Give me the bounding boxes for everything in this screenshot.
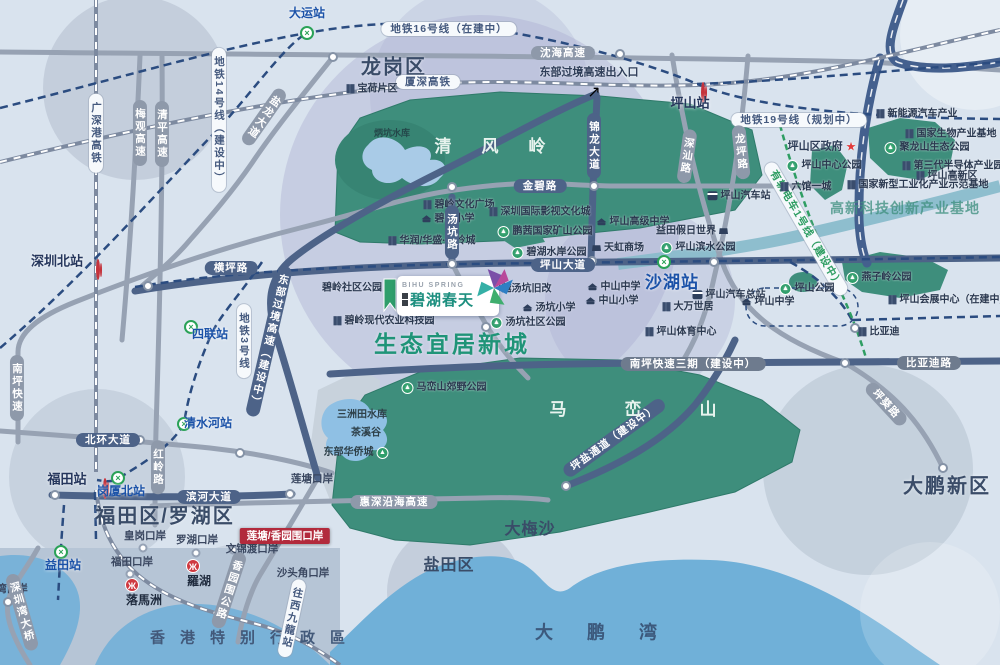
metro-line16-label: 地铁16号线（在建中） bbox=[381, 22, 516, 36]
dapeng-bay-text: 大鹏湾 bbox=[535, 623, 691, 644]
bld-icon bbox=[347, 85, 355, 94]
baohe-area-text: 宝荷片区 bbox=[358, 83, 398, 95]
bld-icon bbox=[848, 181, 856, 190]
pingshan-avenue: 坪山大道 bbox=[531, 258, 595, 272]
jinlong-avenue: 锦龙大道 bbox=[587, 113, 601, 179]
tangkeng-community-park: ▲汤坑社区公园 bbox=[491, 317, 566, 329]
luohu-port-text: 罗湖口岸 bbox=[176, 534, 218, 546]
hongling-road-text: 红岭路 bbox=[152, 448, 164, 486]
hightech-innovation-base: 高新科技创新产业基地 bbox=[830, 200, 980, 216]
bld-icon bbox=[663, 303, 671, 312]
pingshan-avenue-text: 坪山大道 bbox=[540, 259, 586, 271]
xiashen-hsr-text: 厦深高铁 bbox=[405, 76, 451, 88]
new-energy-auto-industry: 新能源汽车产业 bbox=[877, 108, 958, 120]
sz-intl-film-culture-city-text: 深圳国际影视文化城 bbox=[501, 206, 591, 218]
port-node bbox=[192, 549, 201, 558]
jinlong-avenue-text: 锦龙大道 bbox=[588, 121, 600, 171]
huanggang-port-text: 皇岗口岸 bbox=[124, 530, 166, 542]
sch-icon bbox=[588, 283, 598, 291]
bingkeng-reservoir-text: 炳坑水库 bbox=[374, 128, 410, 138]
bld-icon bbox=[889, 296, 897, 305]
dongbu-oct-text: 东部华侨城 bbox=[324, 447, 374, 459]
tianhong-mall: 天虹商场 bbox=[592, 242, 644, 254]
huishen-coastal-expressway: 惠深沿海高速 bbox=[351, 495, 438, 509]
metro-line14-label-text: 地铁14号线（建设中） bbox=[213, 56, 225, 184]
pengxi-national-mine-park: ▲鹏茜国家矿山公园 bbox=[498, 226, 593, 238]
zhongshan-primary-school-text: 中山小学 bbox=[599, 295, 639, 307]
yanziling-park-text: 燕子岭公园 bbox=[862, 272, 912, 284]
park-icon: ▲ bbox=[491, 317, 503, 329]
byd: 比亚迪 bbox=[859, 326, 900, 338]
pingshan-sports-center: 坪山体育中心 bbox=[646, 326, 717, 338]
huanggang-port: 皇岗口岸 bbox=[124, 530, 166, 542]
lok-ma-chau-text: 落馬洲 bbox=[126, 594, 162, 608]
map-root: 大运站地铁16号线（在建中）龙岗区沈海高速厦深高铁东部过境高速出入口宝荷片区坪山… bbox=[0, 0, 1000, 665]
road-node bbox=[143, 281, 153, 291]
station-pingshan: 坪山站 bbox=[670, 97, 709, 112]
tangkeng-road: 汤坑路 bbox=[445, 205, 459, 259]
chaxigu-text: 茶溪谷 bbox=[351, 427, 381, 439]
metro-line19-label: 地铁19号线（规划中） bbox=[731, 113, 866, 127]
liuguan-yicheng-text: 六馆一城 bbox=[792, 181, 832, 193]
liantang-xiangyuanwei-port-text: 莲塘/香园围口岸 bbox=[247, 530, 323, 542]
star-icon: ★ bbox=[846, 141, 857, 153]
station-qingshuihe: 清水河站 bbox=[184, 417, 232, 431]
pengxi-national-mine-park-text: 鹏茜国家矿山公园 bbox=[513, 226, 593, 238]
station-shenzhenbei: 深圳北站 bbox=[31, 255, 83, 270]
bus-icon bbox=[693, 291, 703, 300]
bld-icon bbox=[781, 183, 789, 192]
liantang-xiangyuanwei-port: 莲塘/香园围口岸 bbox=[240, 528, 330, 544]
qingfengling-text: 清风岭 bbox=[435, 137, 576, 157]
park-icon: ▲ bbox=[787, 160, 799, 172]
sanzhoutian-reservoir-text: 三洲田水库 bbox=[337, 409, 387, 421]
huishen-coastal-expressway-text: 惠深沿海高速 bbox=[360, 496, 429, 508]
station-shahu-text: 沙湖站 bbox=[645, 273, 699, 293]
byd-road-text: 比亚迪路 bbox=[906, 357, 952, 369]
hongling-road: 红岭路 bbox=[151, 440, 165, 494]
highway-exit-icon: ↗ bbox=[587, 82, 600, 102]
metro-station-icon: × bbox=[111, 471, 125, 485]
station-shenzhenbei-text: 深圳北站 bbox=[31, 255, 83, 270]
liantang-port: 莲塘口岸 bbox=[291, 473, 333, 485]
bld-icon bbox=[903, 162, 911, 171]
sch-icon bbox=[742, 298, 752, 306]
park-icon: ▲ bbox=[847, 272, 859, 284]
biling-modern-agritech-park: 碧岭现代农业科技园 bbox=[334, 315, 435, 327]
road-node bbox=[561, 481, 571, 491]
qingfengling: 清风岭 bbox=[435, 137, 576, 157]
pingshan-bus-station-text: 坪山汽车站 bbox=[721, 190, 771, 202]
luohu-port: 罗湖口岸 bbox=[176, 534, 218, 546]
bld-icon bbox=[877, 110, 885, 119]
nanping-expressway: 南坪快速 bbox=[10, 355, 24, 421]
mtr-station-icon: Ж bbox=[186, 559, 200, 573]
station-dayun: 大运站 bbox=[289, 7, 325, 21]
yitian-holiday-world-text: 益田假日世界 bbox=[656, 225, 716, 237]
station-silian-text: 四联站 bbox=[192, 328, 228, 342]
dongbu-expressway-exit: 东部过境高速出入口 bbox=[540, 67, 639, 80]
shatoujiao-port-text: 沙头角口岸 bbox=[277, 567, 330, 579]
logo-cn: 碧湖春天 bbox=[410, 289, 474, 310]
hk-sar-text: 香港特别行政區 bbox=[150, 629, 360, 646]
metro-line3-label-text: 地铁3号线 bbox=[238, 312, 250, 370]
eco-livable-new-city: 生态宜居新城 bbox=[374, 331, 530, 357]
pingshan-bus-station: 坪山汽车站 bbox=[708, 190, 771, 202]
logo-text: BIHU SPRING 碧湖春天 bbox=[402, 282, 474, 310]
pingshan-central-park-text: 坪山中心公园 bbox=[802, 160, 862, 172]
road-node bbox=[589, 181, 599, 191]
station-futian-text: 福田站 bbox=[47, 473, 86, 488]
pingshan-convention-center: 坪山会展中心（在建中） bbox=[889, 294, 1000, 306]
shenhai-expressway-text: 沈海高速 bbox=[540, 47, 586, 59]
beihuan-avenue: 北环大道 bbox=[76, 433, 140, 447]
biling-community-park-text: 碧岭社区公园 bbox=[322, 282, 382, 294]
yanziling-park: ▲燕子岭公园 bbox=[847, 272, 912, 284]
road-node bbox=[447, 259, 457, 269]
park-icon: ▲ bbox=[498, 226, 510, 238]
biling-modern-agritech-park-text: 碧岭现代农业科技园 bbox=[345, 315, 435, 327]
dongbu-expressway-exit-text: 东部过境高速出入口 bbox=[540, 67, 639, 80]
railway-station-icon bbox=[96, 259, 100, 280]
station-futian: 福田站 bbox=[47, 473, 86, 488]
road-node bbox=[938, 463, 948, 473]
bld-icon bbox=[388, 237, 396, 246]
station-shahu: 沙湖站 bbox=[645, 273, 699, 293]
tangkeng-primary-school-text: 汤坑小学 bbox=[536, 302, 576, 314]
pingshan-park-text: 坪山公园 bbox=[795, 283, 835, 295]
district-yantian-text: 盐田区 bbox=[423, 557, 474, 575]
tangkeng-road-text: 汤坑路 bbox=[446, 213, 458, 251]
zhongshan-middle-school-text: 中山中学 bbox=[601, 281, 641, 293]
cart-icon bbox=[719, 228, 728, 234]
julongshan-eco-park-text: 聚龙山生态公园 bbox=[900, 142, 970, 154]
pingshan-park: ▲坪山公园 bbox=[780, 283, 835, 295]
eco-livable-new-city-text: 生态宜居新城 bbox=[374, 331, 530, 357]
metro-line16-label-text: 地铁16号线（在建中） bbox=[390, 23, 507, 35]
district-yantian: 盐田区 bbox=[423, 557, 474, 575]
national-new-industrial-base: 国家新型工业化产业示范基地 bbox=[848, 179, 989, 191]
zhongshan-middle-school: 中山中学 bbox=[588, 281, 641, 293]
sch-icon bbox=[523, 304, 533, 312]
road-node bbox=[447, 182, 457, 192]
meiguan-expressway: 梅观高速 bbox=[133, 100, 147, 166]
national-new-industrial-base-text: 国家新型工业化产业示范基地 bbox=[859, 179, 989, 191]
biling-culture-plaza: 碧岭文化广场 bbox=[424, 199, 495, 211]
maluanshan-country-park-text: 马峦山郊野公园 bbox=[417, 382, 487, 394]
station-dayun-text: 大运站 bbox=[289, 7, 325, 21]
metro-line19-label-text: 地铁19号线（规划中） bbox=[740, 114, 857, 126]
station-yitian-text: 益田站 bbox=[45, 559, 81, 573]
new-energy-auto-industry-text: 新能源汽车产业 bbox=[888, 108, 958, 120]
metro-line14-label: 地铁14号线（建设中） bbox=[212, 48, 226, 192]
bihu-spring-logo: BIHU SPRING 碧湖春天 bbox=[397, 276, 499, 316]
road-node bbox=[328, 52, 338, 62]
metro-station-icon: × bbox=[54, 545, 68, 559]
hengping-road: 横坪路 bbox=[205, 261, 258, 275]
district-dapeng-text: 大鹏新区 bbox=[903, 476, 991, 499]
dawan-shiju: 大万世居 bbox=[663, 301, 714, 313]
park-icon: ▲ bbox=[885, 142, 897, 154]
futian-port-text: 福田口岸 bbox=[111, 556, 153, 568]
bld-icon bbox=[490, 208, 498, 217]
park-icon: ▲ bbox=[402, 382, 414, 394]
port-node bbox=[139, 544, 148, 553]
huarun-huasheng-bilingcheng: 华润/华盛·碧岭城 bbox=[388, 235, 475, 247]
qingping-expressway-text: 清平高速 bbox=[156, 109, 168, 159]
bus-icon bbox=[708, 192, 718, 201]
longping-road-text: 龙坪路 bbox=[733, 133, 749, 172]
pingshan-convention-center-text: 坪山会展中心（在建中） bbox=[900, 294, 1000, 306]
pingshan-central-park: ▲坪山中心公园 bbox=[787, 160, 862, 172]
road-node bbox=[709, 257, 719, 267]
sanzhoutian-reservoir: 三洲田水库 bbox=[337, 409, 387, 421]
meiguan-expressway-text: 梅观高速 bbox=[134, 108, 146, 158]
park-icon: ▲ bbox=[512, 247, 524, 259]
lo-wu-text: 羅湖 bbox=[187, 575, 211, 589]
pinwheel-icon bbox=[473, 267, 515, 309]
nanping-expressway-text: 南坪快速 bbox=[11, 363, 23, 413]
logo-mark-icon bbox=[402, 293, 408, 306]
station-silian: 四联站 bbox=[192, 328, 228, 342]
pingshan-middle-school: 坪山中学 bbox=[742, 296, 795, 308]
park-icon: ▲ bbox=[377, 447, 389, 459]
road-node bbox=[840, 358, 850, 368]
dameisha-text: 大梅沙 bbox=[504, 521, 555, 539]
bld-icon bbox=[424, 201, 432, 210]
bld-icon bbox=[859, 328, 867, 337]
binhe-avenue-text: 滨河大道 bbox=[186, 491, 232, 503]
huarun-huasheng-bilingcheng-text: 华润/华盛·碧岭城 bbox=[399, 235, 475, 247]
beihuan-avenue-text: 北环大道 bbox=[85, 434, 131, 446]
pingshan-sports-center-text: 坪山体育中心 bbox=[657, 326, 717, 338]
shatoujiao-port: 沙头角口岸 bbox=[277, 567, 330, 579]
liuguan-yicheng: 六馆一城 bbox=[781, 181, 832, 193]
sch-icon bbox=[586, 297, 596, 305]
dapeng-bay: 大鹏湾 bbox=[535, 623, 691, 644]
pingshan-middle-school-text: 坪山中学 bbox=[755, 296, 795, 308]
pingshan-riverside-park: ▲坪山滨水公园 bbox=[661, 242, 736, 254]
metro-station-icon: × bbox=[300, 26, 314, 40]
nanping-expressway-phase3-text: 南坪快速三期（建设中） bbox=[630, 358, 757, 370]
qingping-expressway: 清平高速 bbox=[155, 101, 169, 167]
yitian-holiday-world: 益田假日世界 bbox=[656, 225, 728, 237]
lo-wu: 羅湖 bbox=[187, 575, 211, 589]
station-qingshuihe-text: 清水河站 bbox=[184, 417, 232, 431]
pingshan-district-govt: 坪山区政府★ bbox=[788, 141, 857, 154]
biling-community-park: 碧岭社区公园 bbox=[322, 282, 382, 294]
station-gangxiabei-text: 岗厦北站 bbox=[97, 485, 145, 499]
district-dapeng: 大鹏新区 bbox=[903, 476, 991, 499]
national-bio-industry-base-text: 国家生物产业基地 bbox=[917, 128, 997, 140]
maluanshan-text: 马峦山 bbox=[550, 400, 775, 420]
lok-ma-chau: 落馬洲 bbox=[126, 594, 162, 608]
futian-port: 福田口岸 bbox=[111, 556, 153, 568]
cart-icon bbox=[592, 245, 601, 251]
hk-sar: 香港特别行政區 bbox=[150, 629, 360, 646]
park-icon: ▲ bbox=[661, 242, 673, 254]
biling-culture-plaza-text: 碧岭文化广场 bbox=[435, 199, 495, 211]
dawan-shiju-text: 大万世居 bbox=[674, 301, 714, 313]
tangkeng-primary-school: 汤坑小学 bbox=[523, 302, 576, 314]
park-icon: ▲ bbox=[780, 283, 792, 295]
mtr-station-icon: Ж bbox=[125, 578, 139, 592]
road-node bbox=[50, 490, 60, 500]
liantang-port-text: 莲塘口岸 bbox=[291, 473, 333, 485]
bld-icon bbox=[334, 317, 342, 326]
metro-line3-label: 地铁3号线 bbox=[237, 304, 251, 378]
guangshengang-hsr: 广深港高铁 bbox=[89, 94, 103, 173]
hengping-road-text: 横坪路 bbox=[214, 262, 249, 274]
nanping-expressway-phase3: 南坪快速三期（建设中） bbox=[621, 357, 766, 371]
byd-text: 比亚迪 bbox=[870, 326, 900, 338]
metro-station-icon: × bbox=[657, 255, 671, 269]
dameisha: 大梅沙 bbox=[504, 521, 555, 539]
dongbu-oct: 东部华侨城▲ bbox=[324, 447, 389, 459]
district-futian-luohu-text: 福田区/罗湖区 bbox=[95, 506, 235, 529]
byd-road: 比亚迪路 bbox=[897, 356, 961, 370]
shenhai-expressway: 沈海高速 bbox=[531, 46, 595, 60]
station-gangxiabei: 岗厦北站 bbox=[97, 485, 145, 499]
baohe-area: 宝荷片区 bbox=[347, 83, 398, 95]
maluanshan: 马峦山 bbox=[550, 400, 775, 420]
pingshan-riverside-park-text: 坪山滨水公园 bbox=[676, 242, 736, 254]
pingshan-district-govt-text: 坪山区政府 bbox=[788, 141, 843, 154]
jinbi-road-text: 金碧路 bbox=[523, 180, 558, 192]
sch-icon bbox=[422, 215, 432, 223]
bld-icon bbox=[906, 130, 914, 139]
tianhong-mall-text: 天虹商场 bbox=[604, 242, 644, 254]
tangkeng-community-park-text: 汤坑社区公园 bbox=[506, 317, 566, 329]
maluanshan-country-park: ▲马峦山郊野公园 bbox=[402, 382, 487, 394]
sch-icon bbox=[597, 218, 607, 226]
xiashen-hsr: 厦深高铁 bbox=[396, 75, 460, 89]
hightech-innovation-base-text: 高新科技创新产业基地 bbox=[830, 200, 980, 216]
sz-intl-film-culture-city: 深圳国际影视文化城 bbox=[490, 206, 591, 218]
road-node bbox=[235, 448, 245, 458]
julongshan-eco-park: ▲聚龙山生态公园 bbox=[885, 142, 970, 154]
jinbi-road: 金碧路 bbox=[514, 179, 567, 193]
road-node bbox=[285, 489, 295, 499]
national-bio-industry-base: 国家生物产业基地 bbox=[906, 128, 997, 140]
road-node bbox=[615, 49, 625, 59]
binhe-avenue: 滨河大道 bbox=[177, 490, 241, 504]
bingkeng-reservoir: 炳坑水库 bbox=[374, 128, 410, 138]
district-futian-luohu: 福田区/罗湖区 bbox=[95, 506, 235, 529]
bld-icon bbox=[646, 328, 654, 337]
port-node bbox=[126, 570, 135, 579]
station-yitian: 益田站 bbox=[45, 559, 81, 573]
logo-en: BIHU SPRING bbox=[402, 282, 474, 289]
guangshengang-hsr-text: 广深港高铁 bbox=[90, 102, 102, 165]
chaxigu: 茶溪谷 bbox=[351, 427, 381, 439]
station-pingshan-text: 坪山站 bbox=[670, 97, 709, 112]
zhongshan-primary-school: 中山小学 bbox=[586, 295, 639, 307]
